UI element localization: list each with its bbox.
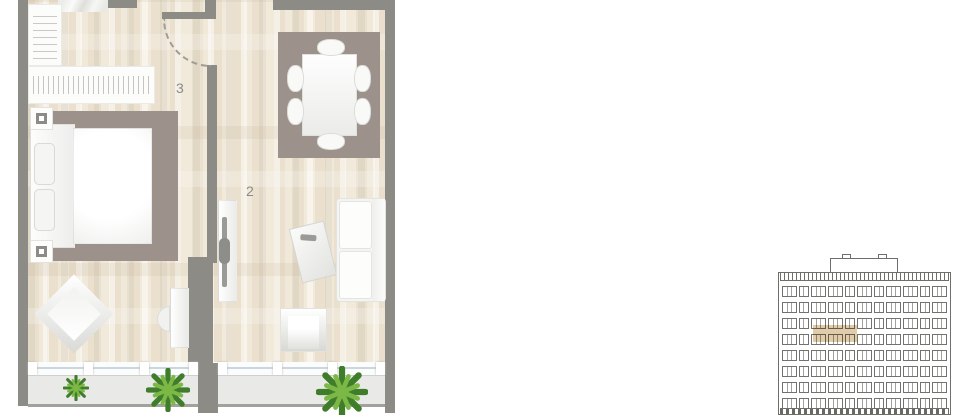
building-floor-row bbox=[782, 302, 947, 313]
unit-highlight[interactable] bbox=[813, 325, 857, 342]
remote-icon bbox=[300, 234, 316, 241]
wall-right bbox=[385, 0, 395, 413]
wardrobe bbox=[28, 4, 62, 66]
window-icon bbox=[932, 366, 947, 377]
nightstand bbox=[30, 240, 53, 263]
window-icon bbox=[845, 382, 855, 393]
window-icon bbox=[845, 302, 855, 313]
wall-hallway bbox=[207, 65, 217, 263]
window-icon bbox=[799, 286, 809, 297]
sofa-cushion bbox=[339, 251, 372, 299]
lamp-icon bbox=[36, 113, 47, 124]
window-icon bbox=[903, 286, 918, 297]
window-icon bbox=[811, 286, 826, 297]
window-icon bbox=[828, 366, 843, 377]
lounge-chair bbox=[280, 308, 327, 352]
window-icon bbox=[886, 366, 901, 377]
window-icon bbox=[874, 302, 884, 313]
window-icon bbox=[886, 302, 901, 313]
dining-chair bbox=[317, 39, 345, 56]
desk bbox=[170, 288, 189, 348]
window-icon bbox=[874, 366, 884, 377]
hanger-lines-icon bbox=[33, 11, 57, 59]
sofa-back bbox=[372, 199, 385, 301]
building-facade bbox=[778, 272, 951, 415]
window-icon bbox=[903, 350, 918, 361]
wall-top-right bbox=[273, 0, 395, 10]
window-icon bbox=[845, 350, 855, 361]
window-icon bbox=[874, 382, 884, 393]
window-icon bbox=[782, 350, 797, 361]
window-icon bbox=[903, 334, 918, 345]
window-icon bbox=[857, 382, 872, 393]
pillow bbox=[34, 143, 55, 185]
floor-plan[interactable]: 3 2 bbox=[0, 0, 420, 415]
building-floor-row bbox=[782, 350, 947, 361]
room-label-living: 2 bbox=[246, 183, 254, 199]
wall-entry-stub bbox=[205, 0, 216, 19]
plant-icon bbox=[63, 375, 89, 401]
window-icon bbox=[857, 334, 872, 345]
window-icon bbox=[874, 286, 884, 297]
hanger-lines-icon bbox=[33, 76, 150, 94]
bathroom-fragment bbox=[58, 0, 108, 12]
window-icon bbox=[828, 302, 843, 313]
double-bed bbox=[73, 128, 152, 244]
window-icon bbox=[920, 366, 930, 377]
wall-lower bbox=[188, 257, 213, 363]
window-icon bbox=[799, 366, 809, 377]
seat-cushion bbox=[288, 316, 319, 349]
window-icon bbox=[782, 366, 797, 377]
window-mullion bbox=[273, 362, 282, 375]
window-icon bbox=[903, 382, 918, 393]
dining-chair bbox=[317, 133, 345, 150]
window-icon bbox=[782, 286, 797, 297]
window-icon bbox=[857, 302, 872, 313]
building-floor-row bbox=[782, 382, 947, 393]
window-icon bbox=[845, 366, 855, 377]
window-mullion bbox=[376, 362, 385, 375]
sofa bbox=[336, 198, 386, 302]
window-icon bbox=[874, 318, 884, 329]
window-icon bbox=[903, 366, 918, 377]
window-icon bbox=[886, 318, 901, 329]
wall-balcony-divider bbox=[198, 363, 218, 413]
window-icon bbox=[811, 350, 826, 361]
window-mullion bbox=[189, 362, 198, 375]
sofa-cushion bbox=[339, 201, 372, 249]
window-icon bbox=[857, 286, 872, 297]
window-icon bbox=[920, 302, 930, 313]
dining-chair bbox=[287, 98, 304, 125]
plant-icon bbox=[146, 368, 190, 412]
window-icon bbox=[903, 302, 918, 313]
building-floor-row bbox=[782, 334, 947, 345]
window-icon bbox=[828, 286, 843, 297]
window-icon bbox=[903, 318, 918, 329]
window-icon bbox=[799, 334, 809, 345]
window-icon bbox=[874, 334, 884, 345]
window-icon bbox=[920, 318, 930, 329]
window-icon bbox=[782, 334, 797, 345]
window-icon bbox=[874, 350, 884, 361]
roof-structure bbox=[830, 258, 898, 273]
wall-top bbox=[108, 0, 137, 8]
building-elevation[interactable] bbox=[778, 253, 952, 415]
seat-cushion bbox=[47, 287, 101, 341]
window-icon bbox=[799, 350, 809, 361]
window-icon bbox=[828, 382, 843, 393]
closet bbox=[28, 66, 155, 104]
window-icon bbox=[811, 382, 826, 393]
window-icon bbox=[857, 318, 872, 329]
parapet-band bbox=[780, 273, 949, 281]
window-icon bbox=[886, 382, 901, 393]
ground-floor-band bbox=[780, 408, 949, 414]
window-mullion bbox=[84, 362, 93, 375]
window-mullion bbox=[218, 362, 227, 375]
window-icon bbox=[932, 302, 947, 313]
tv-mount-icon bbox=[219, 238, 230, 264]
dining-chair bbox=[354, 65, 371, 92]
wall-left bbox=[18, 0, 28, 406]
window-icon bbox=[845, 286, 855, 297]
window-icon bbox=[932, 334, 947, 345]
window-icon bbox=[886, 334, 901, 345]
window-icon bbox=[782, 382, 797, 393]
window-icon bbox=[857, 366, 872, 377]
window-icon bbox=[932, 382, 947, 393]
dining-table bbox=[302, 54, 357, 136]
window-icon bbox=[857, 350, 872, 361]
room-label-hallway: 3 bbox=[176, 80, 184, 96]
dining-chair bbox=[354, 98, 371, 125]
window-icon bbox=[811, 366, 826, 377]
window-icon bbox=[932, 286, 947, 297]
window-icon bbox=[782, 318, 797, 329]
window-mullion bbox=[28, 362, 37, 375]
window-icon bbox=[799, 318, 809, 329]
building-floor-row bbox=[782, 318, 947, 329]
building-floor-row bbox=[782, 286, 947, 297]
page: 3 2 bbox=[0, 0, 960, 415]
window-icon bbox=[920, 382, 930, 393]
window-icon bbox=[799, 382, 809, 393]
window-icon bbox=[932, 318, 947, 329]
window-icon bbox=[886, 350, 901, 361]
plant-icon bbox=[316, 366, 368, 415]
window-icon bbox=[799, 302, 809, 313]
window-icon bbox=[828, 350, 843, 361]
window-icon bbox=[920, 350, 930, 361]
pillow bbox=[34, 189, 55, 231]
window-icon bbox=[932, 350, 947, 361]
window-icon bbox=[782, 302, 797, 313]
window-icon bbox=[920, 286, 930, 297]
window-icon bbox=[920, 334, 930, 345]
building-floor-row bbox=[782, 366, 947, 377]
building-floors bbox=[779, 286, 950, 409]
lamp-icon bbox=[36, 246, 47, 257]
dining-chair bbox=[287, 65, 304, 92]
nightstand bbox=[30, 107, 53, 130]
window-icon bbox=[886, 286, 901, 297]
window-icon bbox=[811, 302, 826, 313]
